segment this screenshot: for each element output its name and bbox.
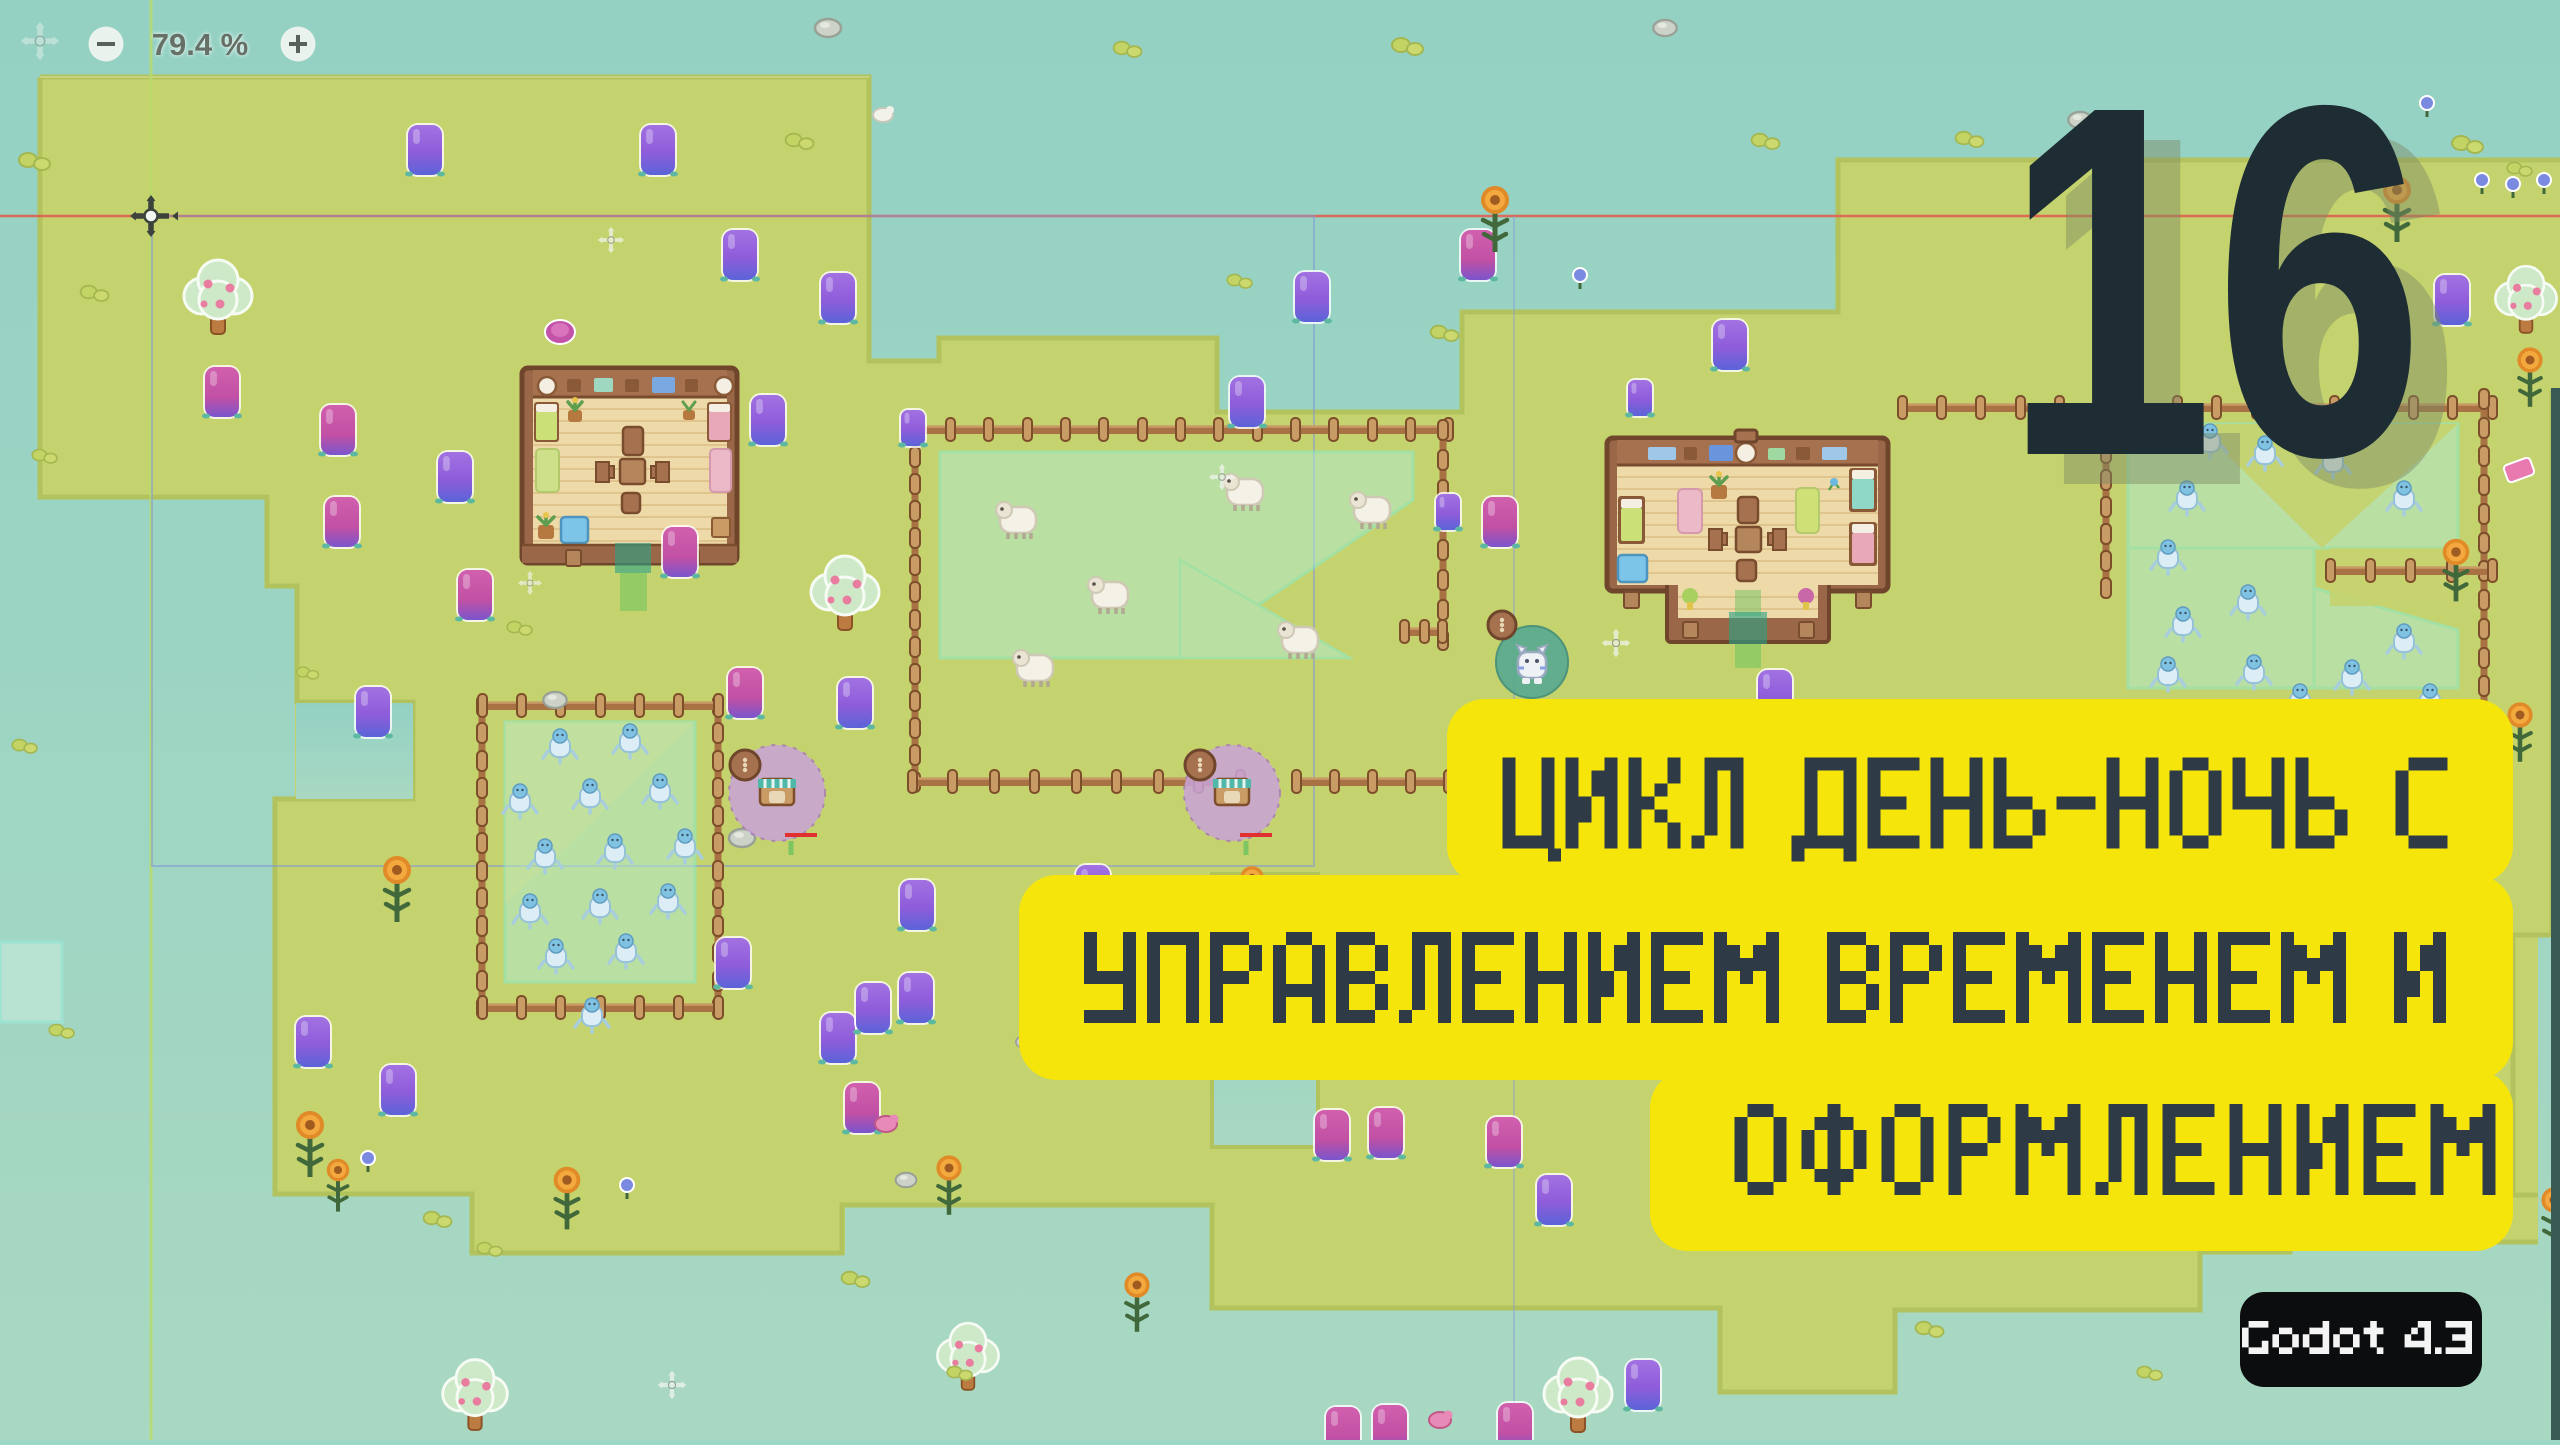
svg-text:79.4 %: 79.4 % (152, 27, 249, 62)
svg-text:16: 16 (2004, 2, 2425, 560)
